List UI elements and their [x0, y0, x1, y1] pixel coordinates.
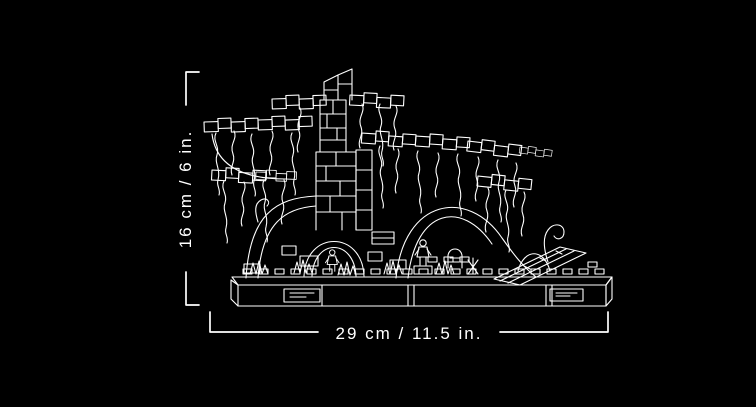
diorama-dimension-illustration: 16 cm / 6 in. 29 cm / 11.5 in.: [0, 0, 756, 407]
root-arches: [246, 196, 550, 278]
droid-figure: [448, 249, 462, 268]
product-dimensions-panel: 16 cm / 6 in. 29 cm / 11.5 in.: [0, 0, 756, 407]
width-dimension: 29 cm / 11.5 in.: [210, 312, 608, 343]
diorama-model: [204, 69, 612, 306]
nameplate-left: [284, 289, 320, 302]
width-label: 29 cm / 11.5 in.: [336, 324, 483, 343]
height-dimension: 16 cm / 6 in.: [176, 72, 199, 305]
nameplate-right: [550, 289, 583, 301]
walkway-ramp: [494, 247, 586, 285]
height-label: 16 cm / 6 in.: [176, 130, 195, 249]
display-base: [231, 277, 612, 306]
